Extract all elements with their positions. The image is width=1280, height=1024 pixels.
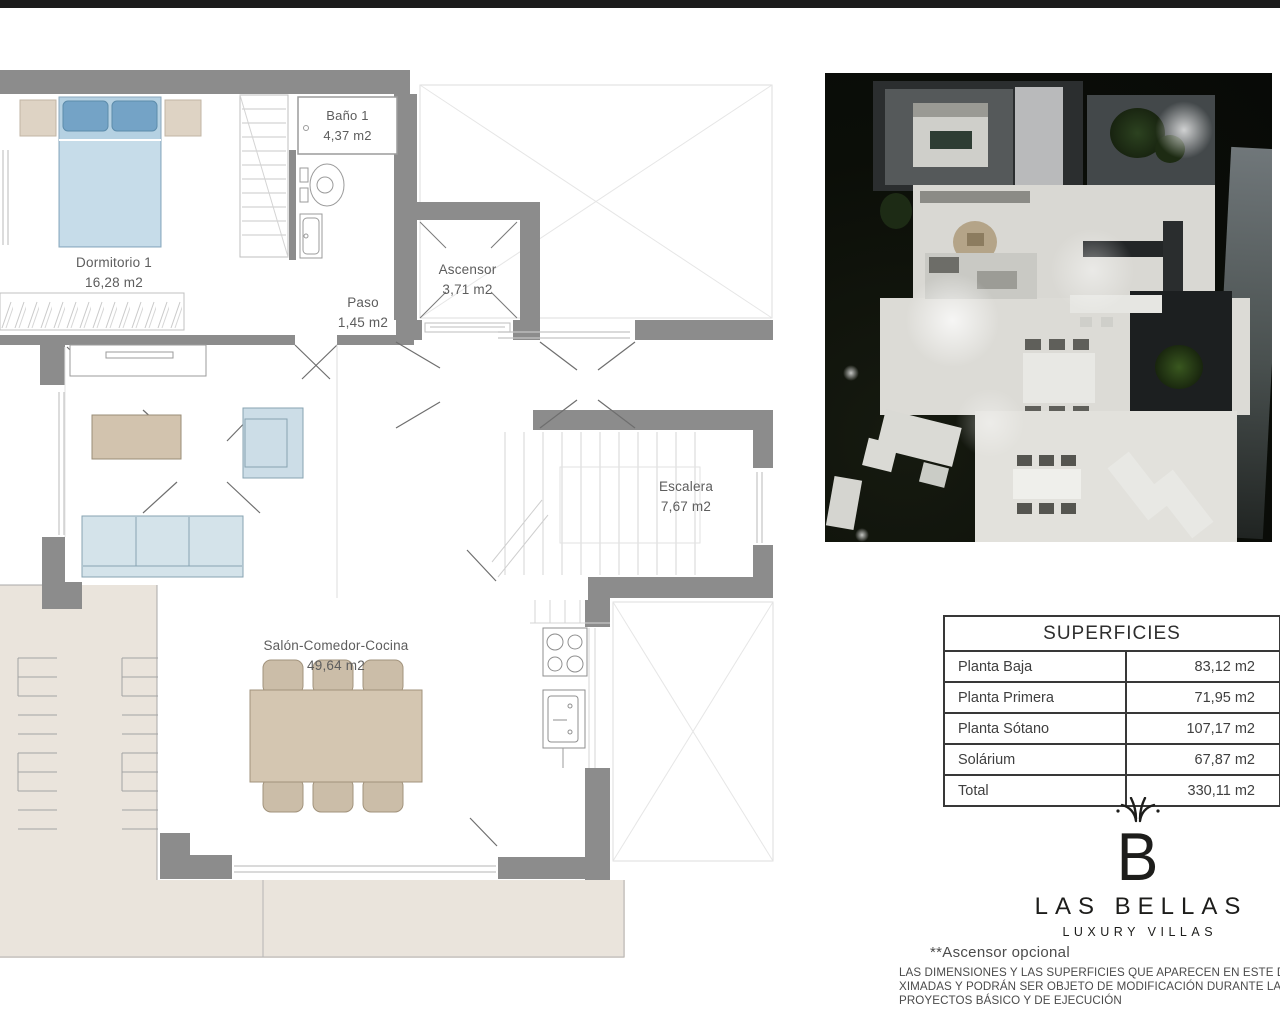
render-bathroom <box>1015 87 1063 185</box>
terrace-bottom <box>0 880 625 958</box>
render-light-hall <box>1050 228 1135 313</box>
render-dining-chair-2 <box>1049 339 1065 350</box>
render-light-living <box>905 273 1000 368</box>
wardrobe <box>240 95 288 257</box>
room-label-bano-1: Baño 1 4,37 m2 <box>298 106 397 145</box>
table-row: Planta Primera 71,95 m2 <box>945 683 1279 714</box>
render-plant-left <box>880 193 912 229</box>
render-stool-1 <box>1080 317 1092 327</box>
render-dining-chair-1 <box>1025 339 1041 350</box>
render-stool-2 <box>1101 317 1113 327</box>
row-value: 107,17 m2 <box>1127 714 1279 743</box>
render-sofa-pillow-1 <box>929 257 959 273</box>
render-outdoor-chair-1 <box>1017 455 1032 466</box>
render-lounge-table <box>919 462 949 488</box>
brand-tagline: LUXURY VILLAS <box>1020 925 1255 939</box>
render-corner-lounger <box>826 476 862 530</box>
brand-monogram: B <box>1029 826 1245 889</box>
render-plant-glow <box>1155 345 1203 389</box>
disclaimer-line-2: XIMADAS Y PODRÁN SER OBJETO DE MODIFICAC… <box>899 980 1280 994</box>
render-outdoor-chair-6 <box>1061 503 1076 514</box>
table-row: Planta Baja 83,12 m2 <box>945 652 1279 683</box>
row-label: Planta Baja <box>945 652 1127 681</box>
render-bed-pillows <box>913 103 988 117</box>
night-aerial-render <box>825 73 1272 542</box>
render-outdoor-chair-2 <box>1039 455 1054 466</box>
table-row: Planta Sótano 107,17 m2 <box>945 714 1279 745</box>
render-garden-light-1 <box>843 365 859 381</box>
disclaimer-line-3: PROYECTOS BÁSICO Y DE EJECUCIÓN <box>899 994 1280 1008</box>
room-label-paso: Paso 1,45 m2 <box>318 293 408 334</box>
render-light-terrace <box>955 388 1025 458</box>
void-room-bottom <box>613 602 773 861</box>
render-outdoor-table <box>1013 469 1081 499</box>
disclaimer-line-1: LAS DIMENSIONES Y LAS SUPERFICIES QUE AP… <box>899 966 1280 980</box>
superficies-table-title: SUPERFICIES <box>945 617 1279 652</box>
row-value: 67,87 m2 <box>1127 745 1279 774</box>
coffee-table <box>92 415 181 459</box>
render-lounge-sofa-2 <box>862 438 898 472</box>
brand-name: LAS BELLAS <box>1020 893 1255 921</box>
bath-sink <box>300 214 322 258</box>
bed <box>59 97 161 247</box>
nightstand-left <box>20 100 56 136</box>
render-outdoor-chair-5 <box>1039 503 1054 514</box>
render-bed-throw <box>930 131 972 149</box>
row-label: Solárium <box>945 745 1127 774</box>
armchair <box>243 408 303 478</box>
elevator-note: **Ascensor opcional <box>930 944 1280 961</box>
toilet <box>300 164 344 206</box>
row-value: 83,12 m2 <box>1127 652 1279 681</box>
kitchen-counter <box>589 628 595 768</box>
kitchen-sink <box>543 690 585 768</box>
render-dining-table <box>1023 353 1095 403</box>
row-label: Planta Primera <box>945 683 1127 712</box>
render-dining-chair-3 <box>1073 339 1089 350</box>
tv-cabinet <box>70 345 206 376</box>
render-outdoor-chair-3 <box>1061 455 1076 466</box>
superficies-table: SUPERFICIES Planta Baja 83,12 m2 Planta … <box>943 615 1280 807</box>
render-garden-light-2 <box>855 528 869 542</box>
table-row: Solárium 67,87 m2 <box>945 745 1279 776</box>
dining-set <box>250 660 422 812</box>
render-outdoor-chair-4 <box>1017 503 1032 514</box>
room-label-ascensor: Ascensor 3,71 m2 <box>420 260 515 301</box>
terrace-left <box>0 585 157 880</box>
room-label-escalera: Escalera 7,67 m2 <box>631 477 741 518</box>
floor-plan-page: Dormitorio 1 16,28 m2 Baño 1 4,37 m2 Pas… <box>0 0 1280 1024</box>
render-patio-light <box>1155 101 1213 159</box>
render-sideboard <box>920 191 1030 203</box>
stove <box>543 628 587 676</box>
room-label-salon: Salón-Comedor-Cocina 49,64 m2 <box>230 636 442 677</box>
nightstand-right <box>165 100 201 136</box>
sofa <box>82 516 243 577</box>
closet <box>0 293 184 330</box>
render-rug-table <box>967 233 984 246</box>
room-label-dormitorio-1: Dormitorio 1 16,28 m2 <box>34 253 194 294</box>
row-label: Planta Sótano <box>945 714 1127 743</box>
footnotes: **Ascensor opcional LAS DIMENSIONES Y LA… <box>899 944 1280 1008</box>
row-value: 71,95 m2 <box>1127 683 1279 712</box>
brand-logo: B LAS BELLAS LUXURY VILLAS <box>1020 797 1255 939</box>
